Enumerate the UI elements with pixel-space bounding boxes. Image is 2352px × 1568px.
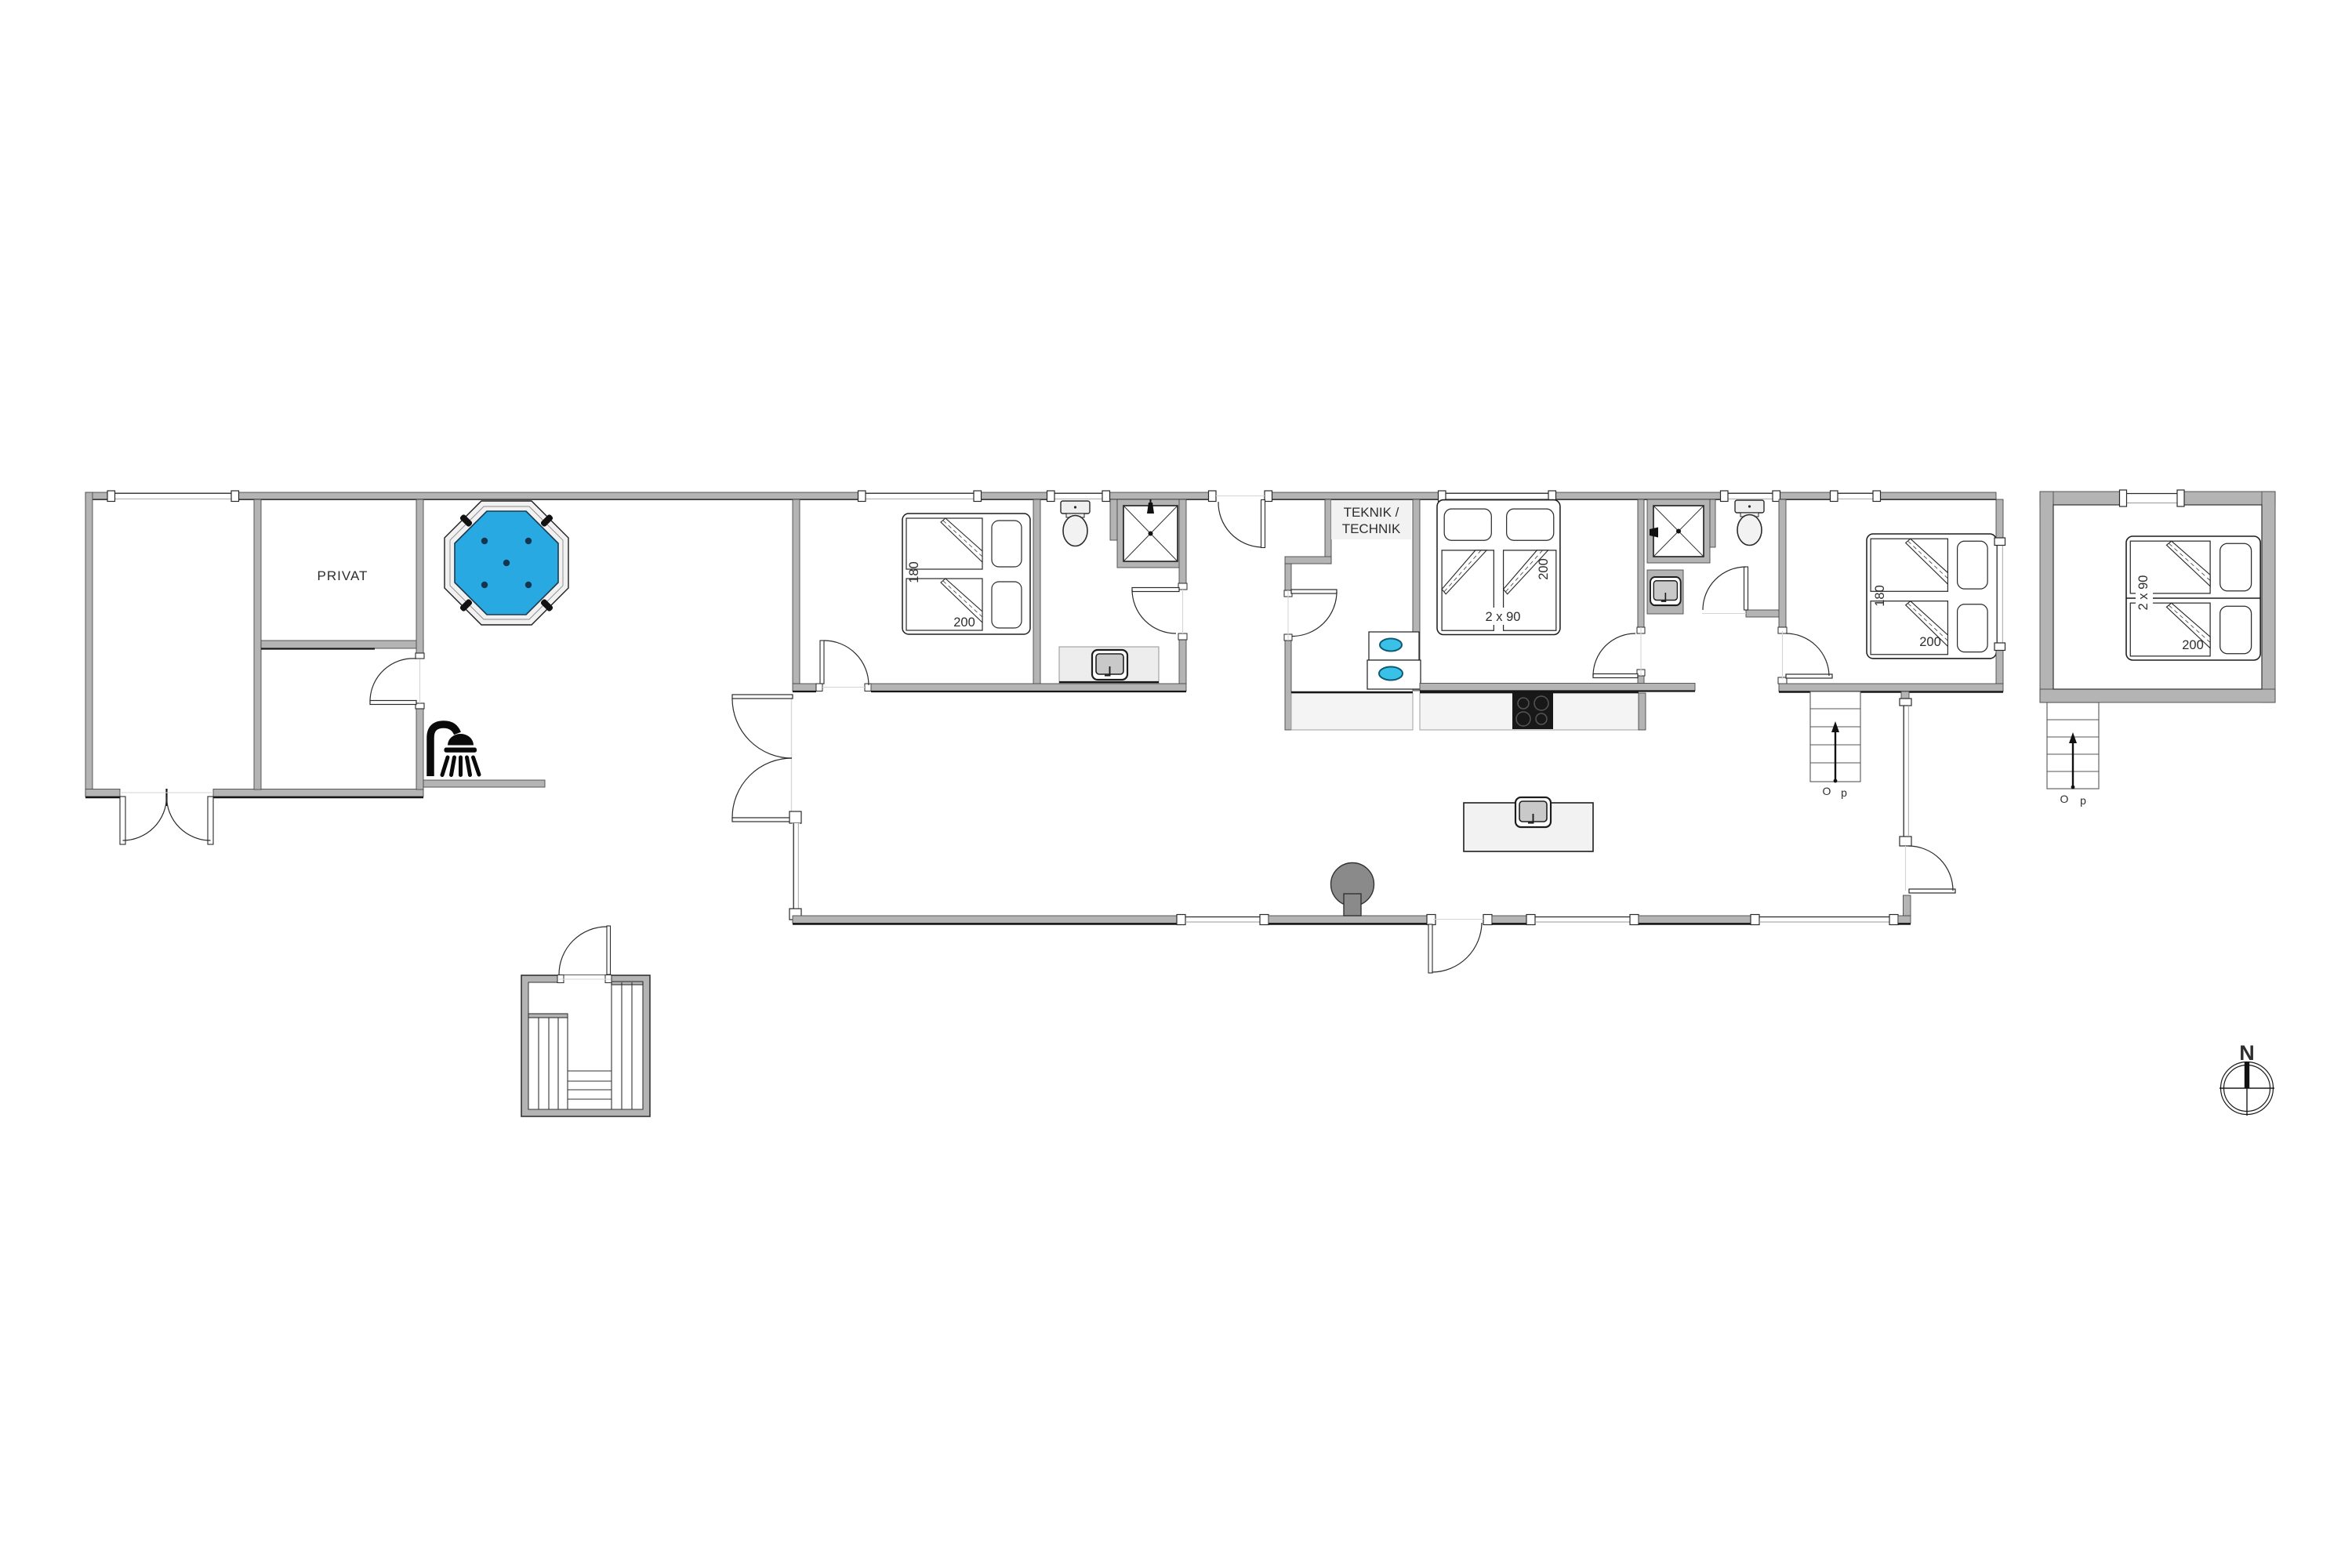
svg-text:2 x 90: 2 x 90	[1486, 610, 1521, 624]
svg-text:O: O	[1823, 785, 1831, 797]
svg-text:p: p	[2080, 794, 2086, 807]
svg-text:200: 200	[2182, 638, 2204, 652]
svg-text:180: 180	[1873, 585, 1887, 607]
svg-text:O: O	[2060, 793, 2069, 805]
svg-text:180: 180	[907, 561, 921, 583]
svg-text:200: 200	[1537, 558, 1551, 580]
svg-text:TEKNIK /: TEKNIK /	[1344, 505, 1399, 520]
svg-text:TECHNIK: TECHNIK	[1342, 521, 1401, 536]
svg-text:PRIVAT: PRIVAT	[318, 568, 368, 583]
svg-text:2 x 90: 2 x 90	[2136, 575, 2151, 611]
svg-text:p: p	[1841, 786, 1847, 799]
svg-text:200: 200	[1919, 635, 1941, 649]
svg-text:N: N	[2239, 1041, 2255, 1065]
svg-text:200: 200	[953, 615, 975, 630]
